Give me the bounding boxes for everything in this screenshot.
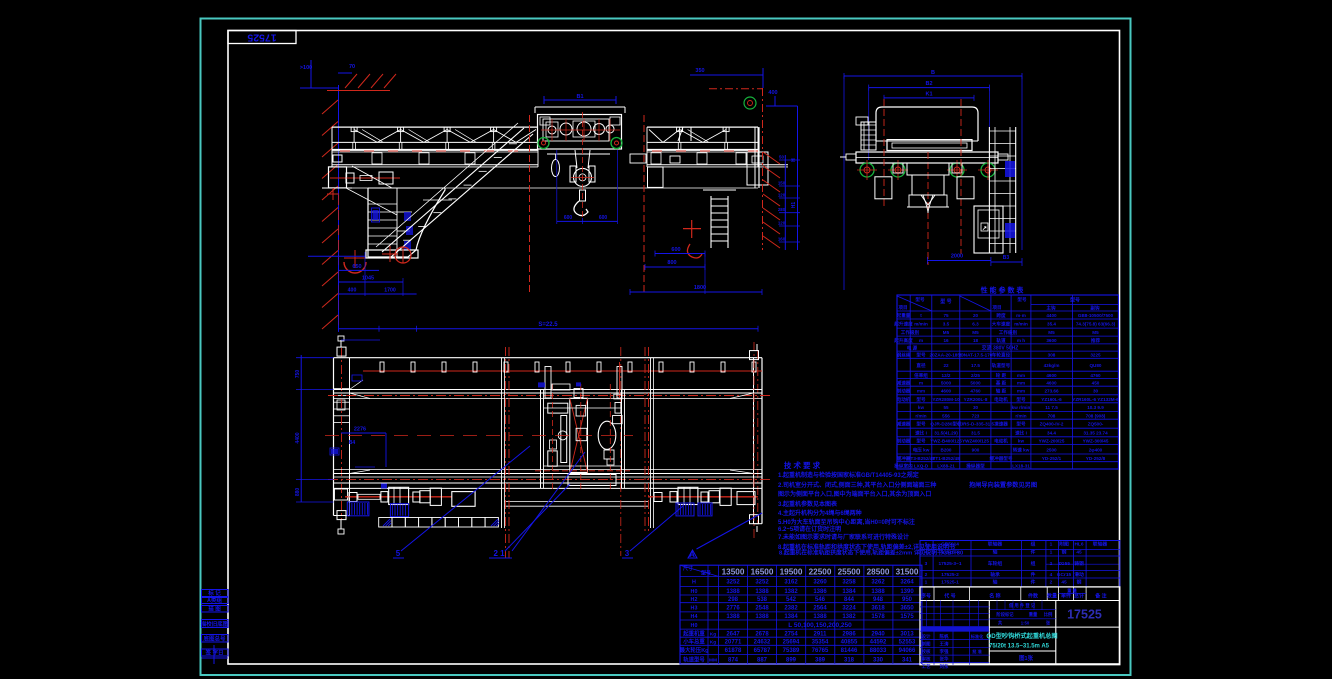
svg-text:2: 2 xyxy=(1050,580,1053,586)
svg-text:5000: 5000 xyxy=(970,380,981,385)
svg-text:HL6: HL6 xyxy=(1074,542,1083,548)
svg-text:3162: 3162 xyxy=(784,580,798,586)
svg-text:LX88-21: LX88-21 xyxy=(937,463,955,468)
svg-text:推荐: 推荐 xyxy=(1091,337,1101,344)
svg-text:1390: 1390 xyxy=(900,589,914,595)
svg-text:45: 45 xyxy=(1076,550,1082,556)
svg-text:B2: B2 xyxy=(925,81,932,87)
svg-text:mm: mm xyxy=(917,389,925,394)
svg-text:400: 400 xyxy=(348,288,357,294)
svg-text:减速器: 减速器 xyxy=(897,421,911,428)
svg-text:YZ160L-6: YZ160L-6 xyxy=(1041,397,1062,402)
svg-text:B200: B200 xyxy=(941,447,952,452)
svg-text:3260: 3260 xyxy=(813,580,827,586)
svg-text:16: 16 xyxy=(943,338,949,343)
svg-text:kw: kw xyxy=(918,405,925,410)
svg-text:708 (908): 708 (908) xyxy=(1086,413,1106,418)
svg-text:88033: 88033 xyxy=(870,648,887,654)
svg-text:起升速度: 起升速度 xyxy=(893,321,913,328)
svg-text:45: 45 xyxy=(1061,580,1067,586)
svg-text:m: m xyxy=(919,380,923,385)
svg-text:型号: 型号 xyxy=(1016,421,1026,428)
svg-text:速比 i: 速比 i xyxy=(1015,430,1027,437)
svg-text:代 号: 代 号 xyxy=(943,593,955,600)
svg-text:17525-2: 17525-2 xyxy=(941,572,959,578)
svg-text:17525: 17525 xyxy=(247,31,276,43)
svg-text:轨道型号: 轨道型号 xyxy=(683,655,705,663)
svg-text:94066: 94066 xyxy=(899,648,916,654)
svg-text:4760: 4760 xyxy=(970,389,981,394)
svg-text:直径: 直径 xyxy=(916,362,926,369)
svg-text:备 注: 备 注 xyxy=(1094,593,1106,600)
svg-text:H2: H2 xyxy=(691,597,698,603)
svg-text:2754: 2754 xyxy=(784,631,798,637)
svg-text:型号: 型号 xyxy=(1070,297,1080,304)
svg-text:76765: 76765 xyxy=(812,648,829,654)
svg-text:20771: 20771 xyxy=(725,639,742,645)
svg-text:750: 750 xyxy=(295,370,301,379)
svg-text:844: 844 xyxy=(844,597,855,603)
svg-text:轮 距: 轮 距 xyxy=(996,372,1007,379)
svg-text:280: 280 xyxy=(778,207,786,212)
svg-text:名 称: 名 称 xyxy=(989,593,1000,600)
svg-text:3600: 3600 xyxy=(1046,338,1057,343)
svg-text:2000: 2000 xyxy=(951,254,963,260)
svg-text:>100: >100 xyxy=(300,65,312,71)
svg-text:298: 298 xyxy=(728,597,739,603)
svg-text:3.起重机参数见本图表: 3.起重机参数见本图表 xyxy=(778,500,838,508)
svg-text:图1张: 图1张 xyxy=(1019,654,1034,662)
svg-text:设计: 设计 xyxy=(922,633,931,640)
svg-text:5000: 5000 xyxy=(941,380,952,385)
svg-text:3013: 3013 xyxy=(900,631,914,637)
svg-text:H3: H3 xyxy=(691,606,698,612)
svg-text:ZQ500-: ZQ500- xyxy=(1088,422,1104,427)
svg-text:4: 4 xyxy=(925,550,928,556)
svg-text:17.5: 17.5 xyxy=(971,363,980,368)
svg-text:B3: B3 xyxy=(1003,255,1010,261)
svg-text:H4: H4 xyxy=(691,614,698,620)
svg-text:技 术 要 求: 技 术 要 求 xyxy=(784,460,821,470)
svg-text:轨道型号: 轨道型号 xyxy=(992,362,1011,369)
svg-text:1382: 1382 xyxy=(842,614,856,620)
svg-text:ZQ400-IV-2: ZQ400-IV-2 xyxy=(1040,422,1064,427)
svg-text:3650: 3650 xyxy=(900,606,914,612)
svg-text:30: 30 xyxy=(1093,389,1099,394)
svg-text:电 源: 电 源 xyxy=(907,345,918,352)
svg-text:1: 1 xyxy=(925,580,928,586)
svg-text:制动器: 制动器 xyxy=(897,388,911,395)
svg-text:25694: 25694 xyxy=(783,639,800,645)
svg-text:电动机: 电动机 xyxy=(994,438,1008,445)
svg-text:120: 120 xyxy=(778,221,786,226)
svg-text:25500: 25500 xyxy=(838,568,861,577)
svg-text:6.3: 6.3 xyxy=(972,322,979,327)
svg-text:708: 708 xyxy=(1048,413,1056,418)
svg-text:借 用 件 登 记: 借 用 件 登 记 xyxy=(1008,602,1036,609)
svg-text:王涛: 王涛 xyxy=(940,640,949,647)
svg-text:4400: 4400 xyxy=(295,432,301,443)
svg-text:75/20t 13.5−31.5m A5: 75/20t 13.5−31.5m A5 xyxy=(989,644,1050,650)
svg-text:MM: MM xyxy=(709,657,717,663)
svg-text:钢: 钢 xyxy=(1077,579,1082,586)
svg-text:型号: 型号 xyxy=(1017,296,1027,303)
svg-text:kw: kw xyxy=(1018,439,1025,444)
svg-text:审核: 审核 xyxy=(922,655,931,662)
svg-text:4: 4 xyxy=(1050,572,1053,578)
svg-text:2940: 2940 xyxy=(871,631,885,637)
svg-text:底图总号: 底图总号 xyxy=(202,635,226,643)
svg-text:950: 950 xyxy=(902,597,913,603)
svg-text:李强: 李强 xyxy=(939,648,949,655)
svg-text:轴: 轴 xyxy=(993,579,998,586)
svg-text:308: 308 xyxy=(1048,353,1056,358)
svg-text:17525-3−1: 17525-3−1 xyxy=(938,561,961,567)
svg-text:交流 380V 50HZ: 交流 380V 50HZ xyxy=(982,345,1019,352)
svg-text:4600: 4600 xyxy=(941,389,952,394)
svg-text:2911: 2911 xyxy=(813,631,827,637)
svg-text:1388: 1388 xyxy=(755,589,769,595)
svg-text:20: 20 xyxy=(973,313,979,318)
svg-text:1382: 1382 xyxy=(784,589,798,595)
svg-text:m/min: m/min xyxy=(914,322,928,327)
svg-text:YZR160L-6 YZ132M-6: YZR160L-6 YZ132M-6 xyxy=(1072,397,1119,402)
svg-text:m/min: m/min xyxy=(1014,322,1028,327)
svg-text:1388: 1388 xyxy=(726,589,740,595)
svg-text:图示为侧面平台入口,图中为端面平台入口,其余为顶面入口: 图示为侧面平台入口,图中为端面平台入口,其余为顶面入口 xyxy=(778,490,931,498)
svg-text:电压 kw: 电压 kw xyxy=(913,446,930,453)
svg-text:52553: 52553 xyxy=(899,639,916,645)
svg-text:2: 2 xyxy=(1050,561,1053,567)
svg-text:凍速器: 凍速器 xyxy=(994,421,1008,428)
svg-text:3: 3 xyxy=(625,549,630,558)
svg-text:874: 874 xyxy=(728,657,739,663)
svg-text:10.3 9.9: 10.3 9.9 xyxy=(1087,405,1104,410)
svg-text:2647: 2647 xyxy=(726,631,740,637)
svg-text:主钩: 主钩 xyxy=(1046,305,1056,312)
svg-text:19500: 19500 xyxy=(780,568,803,577)
svg-text:M5: M5 xyxy=(943,330,950,335)
svg-text:型号: 型号 xyxy=(916,352,926,359)
svg-text:2382: 2382 xyxy=(784,606,798,612)
svg-text:1575: 1575 xyxy=(900,614,914,620)
svg-text:4400: 4400 xyxy=(1046,313,1057,318)
svg-text:M5: M5 xyxy=(1092,330,1099,335)
svg-text:减速器: 减速器 xyxy=(897,379,911,386)
svg-text:轴承: 轴承 xyxy=(990,571,1000,578)
svg-text:YWZ400/125: YWZ400/125 xyxy=(962,439,989,444)
svg-text:描 图: 描 图 xyxy=(208,605,221,613)
svg-text:滑动: 滑动 xyxy=(1074,571,1084,578)
svg-text:4.主起升机构分为4绳与6绳两种: 4.主起升机构分为4绳与6绳两种 xyxy=(778,509,862,517)
svg-text:887: 887 xyxy=(757,657,768,663)
svg-text:546: 546 xyxy=(815,597,826,603)
svg-text:倍率组: 倍率组 xyxy=(913,372,928,379)
svg-text:16500: 16500 xyxy=(751,568,774,577)
svg-text:50: 50 xyxy=(779,155,784,160)
svg-text:起升高度: 起升高度 xyxy=(893,337,913,344)
svg-text:r/min: r/min xyxy=(1015,413,1026,418)
svg-text:HT3-B252/48: HT3-B252/48 xyxy=(907,456,935,461)
svg-text:最大轮压Kg: 最大轮压Kg xyxy=(680,646,709,654)
svg-text:74.3(75.8) 63(66.3): 74.3(75.8) 63(66.3) xyxy=(1076,322,1116,327)
svg-text:31.5(41.29): 31.5(41.29) xyxy=(934,431,958,436)
svg-text:800: 800 xyxy=(667,260,676,266)
svg-text:600: 600 xyxy=(564,215,573,221)
svg-text:mm: mm xyxy=(1017,373,1025,378)
svg-text:1578: 1578 xyxy=(871,614,885,620)
svg-text:H: H xyxy=(692,580,696,586)
svg-text:5: 5 xyxy=(396,549,401,558)
svg-text:7.未能如图示要求时请与厂家联系可进行特殊设计: 7.未能如图示要求时请与厂家联系可进行特殊设计 xyxy=(778,533,909,541)
svg-text:44592: 44592 xyxy=(870,639,887,645)
svg-text:600: 600 xyxy=(599,215,608,221)
svg-text:联轴器: 联轴器 xyxy=(988,541,1003,548)
svg-text:389: 389 xyxy=(815,657,826,663)
svg-text:24632: 24632 xyxy=(754,639,771,645)
svg-text:3262: 3262 xyxy=(871,580,885,586)
svg-text:542: 542 xyxy=(786,597,797,603)
svg-text:65787: 65787 xyxy=(754,648,771,654)
svg-text:2500: 2500 xyxy=(1046,447,1057,452)
svg-text:型号: 型号 xyxy=(1016,396,1026,403)
svg-text:22: 22 xyxy=(943,363,949,368)
svg-text:重 量: 重 量 xyxy=(1067,587,1077,594)
svg-text:工作级别: 工作级别 xyxy=(999,329,1018,336)
svg-text:880: 880 xyxy=(295,488,301,497)
svg-text:2: 2 xyxy=(925,572,928,578)
svg-text:车轮组: 车轮组 xyxy=(988,560,1003,567)
svg-text:型号: 型号 xyxy=(916,438,926,445)
svg-text:1384: 1384 xyxy=(842,589,856,595)
svg-text:H1: H1 xyxy=(791,202,797,209)
svg-text:318: 318 xyxy=(844,657,855,663)
svg-text:mm: mm xyxy=(1017,389,1025,394)
svg-text:Kg: Kg xyxy=(710,639,716,645)
svg-text:型号: 型号 xyxy=(701,570,711,577)
svg-text:比例: 比例 xyxy=(1044,611,1053,618)
svg-text:QD型吵钩桥式起重机总图: QD型吵钩桥式起重机总图 xyxy=(986,632,1057,640)
svg-text:75: 75 xyxy=(943,313,949,318)
svg-text:YZR280M-10: YZR280M-10 xyxy=(932,397,960,402)
svg-text:538: 538 xyxy=(757,597,768,603)
svg-text:描校旧底图: 描校旧底图 xyxy=(201,620,229,628)
svg-text:抱闸导向装置参数见另图: 抱闸导向装置参数见另图 xyxy=(969,481,1037,489)
svg-text:共: 共 xyxy=(998,620,1003,627)
svg-text:型号: 型号 xyxy=(916,421,926,428)
svg-text:电动机: 电动机 xyxy=(994,396,1008,403)
svg-text:数量: 数量 xyxy=(1047,593,1057,600)
svg-text:L 50,100,150,200,250: L 50,100,150,200,250 xyxy=(788,622,852,629)
svg-text:273.66: 273.66 xyxy=(1044,389,1058,394)
svg-text:速比 i: 速比 i xyxy=(915,430,927,437)
svg-text:1.起重机制造与检验按国家标准GB/T14405-93之规定: 1.起重机制造与检验按国家标准GB/T14405-93之规定 xyxy=(778,471,919,479)
svg-text:QJRS-D-335-31.5: QJRS-D-335-31.5 xyxy=(957,422,994,427)
svg-text:序号: 序号 xyxy=(920,593,931,600)
svg-text:YZR200L-8: YZR200L-8 xyxy=(964,397,988,402)
svg-text:mm: mm xyxy=(1017,380,1025,385)
svg-text:55: 55 xyxy=(943,405,949,410)
svg-text:31.35 23.74: 31.35 23.74 xyxy=(1083,431,1108,436)
svg-text:A类组: A类组 xyxy=(207,596,222,604)
svg-text:400: 400 xyxy=(768,90,777,96)
svg-text:ZG55: ZG55 xyxy=(1058,561,1070,567)
svg-text:3618: 3618 xyxy=(871,606,885,612)
svg-text:QU80: QU80 xyxy=(1089,363,1101,368)
svg-text:S=22.5: S=22.5 xyxy=(538,322,558,328)
svg-text:组: 组 xyxy=(1031,541,1036,548)
svg-text:17525: 17525 xyxy=(1067,608,1102,622)
svg-text:GB5014: GB5014 xyxy=(941,542,959,548)
svg-text:3258: 3258 xyxy=(842,580,856,586)
svg-text:4600: 4600 xyxy=(1046,380,1057,385)
svg-text:12/2: 12/2 xyxy=(942,373,951,378)
svg-text:标准化: 标准化 xyxy=(970,633,984,640)
svg-text:1700: 1700 xyxy=(384,288,396,294)
svg-text:2 1: 2 1 xyxy=(493,549,505,558)
svg-text:2776: 2776 xyxy=(726,606,740,612)
svg-text:组: 组 xyxy=(1031,560,1036,567)
svg-text:35.4: 35.4 xyxy=(1047,322,1056,327)
svg-text:2φ400: 2φ400 xyxy=(1089,447,1103,452)
svg-text:2548: 2548 xyxy=(755,606,769,612)
svg-text:YWZ-300/45: YWZ-300/45 xyxy=(1083,439,1109,444)
svg-text:LXQ-D: LXQ-D xyxy=(914,463,929,468)
svg-text:GCr15: GCr15 xyxy=(1057,572,1072,578)
svg-text:张: 张 xyxy=(1046,620,1051,627)
svg-text:LX18-31: LX18-31 xyxy=(1012,463,1030,468)
svg-text:11 7.5: 11 7.5 xyxy=(1045,405,1058,410)
svg-text:40855: 40855 xyxy=(841,639,858,645)
svg-text:2/25: 2/25 xyxy=(971,373,980,378)
svg-text:900: 900 xyxy=(972,447,980,452)
svg-text:H0: H0 xyxy=(691,589,698,595)
svg-text:项目: 项目 xyxy=(898,304,907,311)
svg-text:B4: B4 xyxy=(349,440,356,446)
svg-text:22500: 22500 xyxy=(809,568,832,577)
svg-text:M5: M5 xyxy=(972,330,979,335)
svg-text:330: 330 xyxy=(873,657,884,663)
svg-text:缓冲器型号: 缓冲器型号 xyxy=(990,455,1013,462)
svg-text:转速 kw: 转速 kw xyxy=(1013,446,1030,453)
svg-text:30: 30 xyxy=(973,405,979,410)
svg-text:电动机: 电动机 xyxy=(897,396,911,403)
svg-text:81446: 81446 xyxy=(841,648,858,654)
svg-text:70: 70 xyxy=(349,64,355,70)
svg-text:350: 350 xyxy=(695,68,704,74)
svg-text:张华: 张华 xyxy=(940,655,949,662)
svg-text:轴 距: 轴 距 xyxy=(996,388,1007,395)
svg-text:跨度: 跨度 xyxy=(996,312,1006,319)
svg-text:948: 948 xyxy=(873,597,884,603)
svg-text:5: 5 xyxy=(925,542,928,548)
svg-text:M5: M5 xyxy=(1048,330,1055,335)
svg-text:31500: 31500 xyxy=(896,568,919,577)
svg-text:1: 1 xyxy=(1050,550,1053,556)
svg-text:600: 600 xyxy=(671,247,680,253)
svg-text:陈帆: 陈帆 xyxy=(940,633,949,640)
svg-text:1:50: 1:50 xyxy=(1021,621,1030,626)
svg-text:3252: 3252 xyxy=(755,580,769,586)
svg-text:批 准: 批 准 xyxy=(972,648,982,655)
svg-text:3224: 3224 xyxy=(842,606,856,612)
svg-text:H: H xyxy=(791,158,797,162)
svg-text:2678: 2678 xyxy=(755,631,769,637)
svg-text:YWZ-B400/125: YWZ-B400/125 xyxy=(930,439,962,444)
svg-text:件数: 件数 xyxy=(1028,593,1039,600)
svg-text:556: 556 xyxy=(942,413,950,418)
svg-text:起重量: 起重量 xyxy=(896,312,911,319)
svg-text:型 号: 型 号 xyxy=(940,298,951,305)
svg-text:刘东: 刘东 xyxy=(940,663,949,670)
svg-text:阶段标记: 阶段标记 xyxy=(996,611,1014,618)
svg-text:小车总重: 小车总重 xyxy=(683,637,705,645)
svg-text:H0: H0 xyxy=(691,623,698,629)
svg-text:160: 160 xyxy=(778,237,786,242)
svg-text:2986: 2986 xyxy=(842,631,856,637)
svg-text:3225: 3225 xyxy=(1090,353,1101,358)
svg-text:28500: 28500 xyxy=(867,568,890,577)
svg-text:联轴器: 联轴器 xyxy=(1093,541,1108,548)
svg-text:性 能 参 数 表: 性 能 参 数 表 xyxy=(981,286,1025,295)
svg-text:钢丝绳: 钢丝绳 xyxy=(897,352,911,359)
svg-text:20NAT-17.5-170: 20NAT-17.5-170 xyxy=(959,353,993,358)
svg-text:4760: 4760 xyxy=(1090,373,1101,378)
svg-text:r/min: r/min xyxy=(915,413,926,418)
svg-text:3: 3 xyxy=(925,561,928,567)
svg-text:操纵室内: 操纵室内 xyxy=(894,462,913,469)
svg-text:件: 件 xyxy=(1031,549,1036,556)
svg-text:轴: 轴 xyxy=(993,549,998,556)
svg-text:1388: 1388 xyxy=(755,614,769,620)
svg-text:650: 650 xyxy=(352,264,361,270)
svg-text:型号: 型号 xyxy=(915,296,925,303)
svg-text:1386: 1386 xyxy=(813,589,827,595)
svg-text:项目: 项目 xyxy=(992,304,1001,311)
svg-text:723: 723 xyxy=(972,413,980,418)
svg-text:13500: 13500 xyxy=(722,568,745,577)
svg-text:标 记: 标 记 xyxy=(207,589,221,597)
svg-text:校核: 校核 xyxy=(922,648,931,655)
svg-text:3264: 3264 xyxy=(900,580,914,586)
svg-text:kw r/min: kw r/min xyxy=(1012,405,1031,410)
svg-text:基 距: 基 距 xyxy=(995,379,1007,386)
svg-text:2564: 2564 xyxy=(813,606,827,612)
svg-text:341: 341 xyxy=(902,657,913,663)
svg-text:2.司机室分开式、闭式,侧面三种,其平台入口分侧面端面三种: 2.司机室分开式、闭式,侧面三种,其平台入口分侧面端面三种 xyxy=(778,481,936,489)
svg-text:61878: 61878 xyxy=(725,648,742,654)
svg-text:31.5: 31.5 xyxy=(971,431,980,436)
svg-text:6.2~5项请在订货时注明: 6.2~5项请在订货时注明 xyxy=(778,525,841,533)
svg-text:4600: 4600 xyxy=(1046,373,1057,378)
svg-text:43kg/m: 43kg/m xyxy=(1044,363,1060,368)
svg-text:制图: 制图 xyxy=(922,640,931,647)
svg-text:Kg: Kg xyxy=(710,631,716,637)
svg-text:18: 18 xyxy=(973,338,979,343)
svg-text:35354: 35354 xyxy=(812,639,829,645)
svg-text:1: 1 xyxy=(1050,542,1053,548)
svg-text:5.H0为大车轨面至吊钩中心距离,当H0=0时可不标注: 5.H0为大车轨面至吊钩中心距离,当H0=0时可不标注 xyxy=(778,518,915,526)
svg-text:m·m: m·m xyxy=(1016,313,1026,318)
svg-text:75389: 75389 xyxy=(783,648,800,654)
svg-text:450: 450 xyxy=(1092,380,1100,385)
svg-text:↗: ↗ xyxy=(982,226,987,232)
svg-text:120: 120 xyxy=(778,193,786,198)
svg-text:制动器: 制动器 xyxy=(897,438,911,445)
svg-text:1388: 1388 xyxy=(813,614,827,620)
svg-text:17525-1: 17525-1 xyxy=(941,580,959,586)
svg-text:操纵器型: 操纵器型 xyxy=(966,462,985,469)
